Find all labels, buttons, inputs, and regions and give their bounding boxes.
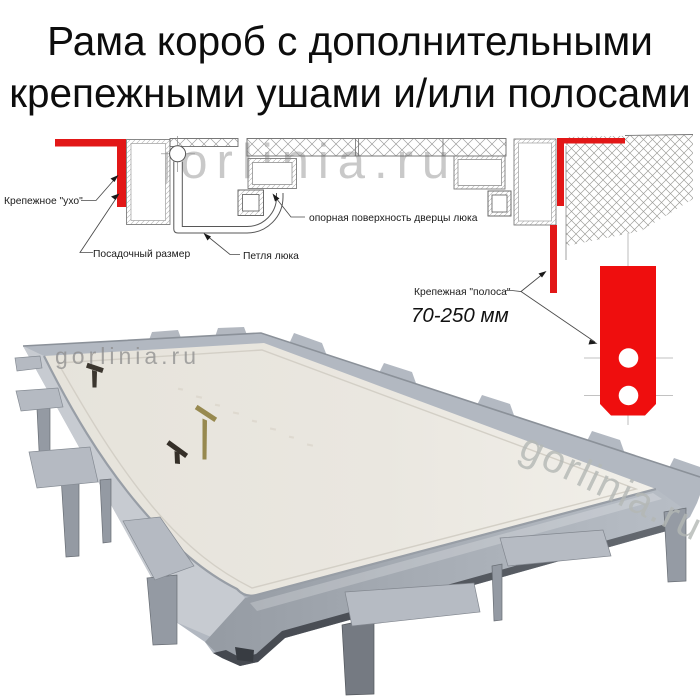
svg-text:70-250 мм: 70-250 мм xyxy=(411,304,509,327)
svg-text:gorlinia.ru: gorlinia.ru xyxy=(55,343,200,369)
svg-text:опорная поверхность дверцы люк: опорная поверхность дверцы люка xyxy=(309,213,478,224)
svg-text:Крепежная "полоса": Крепежная "полоса" xyxy=(414,287,511,298)
svg-text:Крепежное "ухо": Крепежное "ухо" xyxy=(4,196,83,207)
svg-text:Петля люка: Петля люка xyxy=(243,251,299,262)
svg-text:Посадочный размер: Посадочный размер xyxy=(93,249,190,260)
